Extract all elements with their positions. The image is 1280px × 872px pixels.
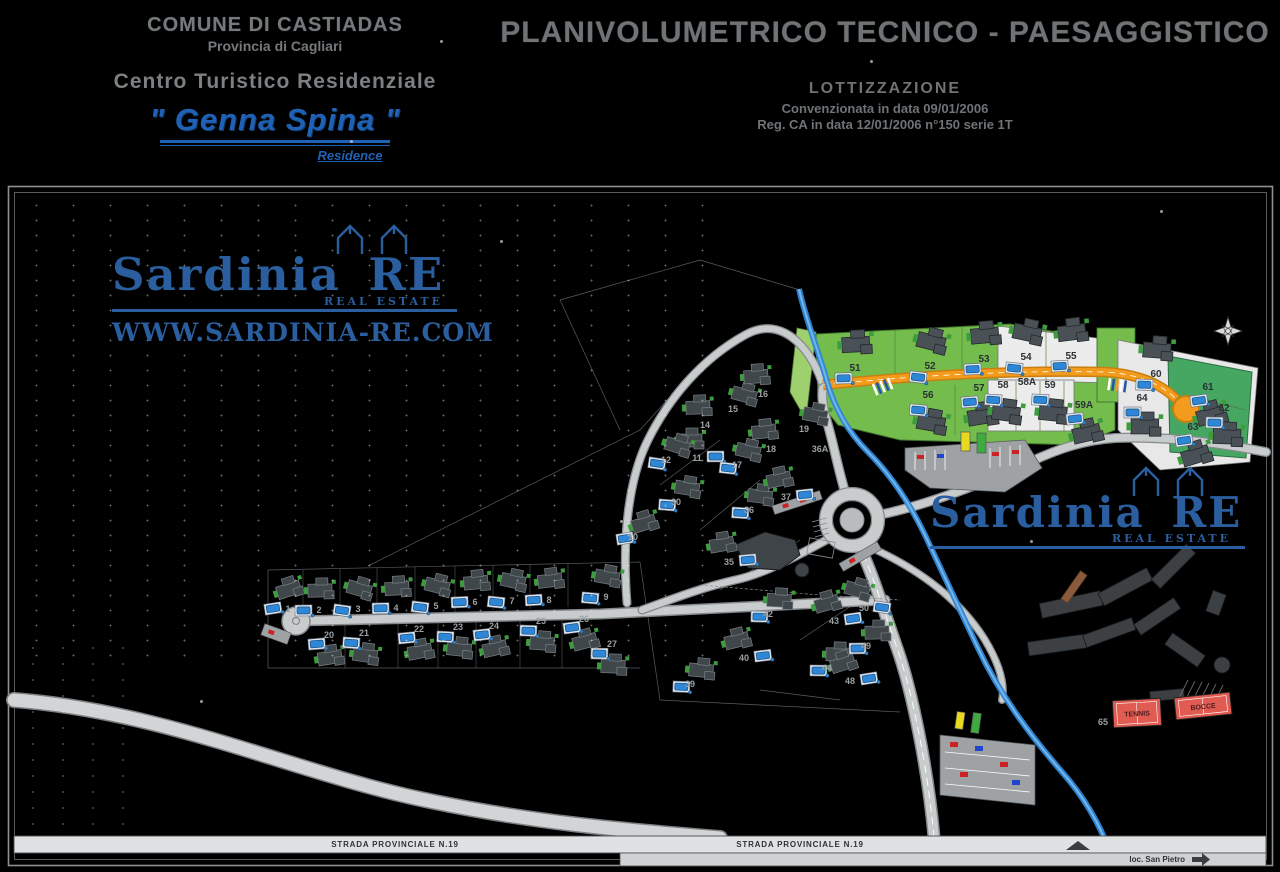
lot-number-label: 43 — [829, 616, 839, 626]
lot-number-label: 4 — [393, 603, 398, 613]
lot-number-label: 56 — [922, 390, 934, 401]
lot-number-label: 65 — [1098, 717, 1108, 727]
swimming-pool — [984, 394, 1004, 407]
brand-underline — [112, 309, 457, 312]
scanned-site-plan: COMUNE DI CASTIADAS Provincia di Cagliar… — [0, 0, 1280, 872]
brand-name: Sardinia RE — [112, 252, 457, 297]
lot-number-label: 23 — [453, 622, 463, 632]
brand-underline — [930, 546, 1245, 549]
house-footprint — [718, 625, 754, 653]
lot-number-label: 62 — [1218, 403, 1230, 414]
lot-number-label: 63 — [1187, 422, 1199, 433]
lot-number-label: 58A — [1018, 377, 1036, 388]
lot-number-label: 6 — [472, 597, 477, 607]
lot-number-label: 7 — [509, 596, 514, 606]
court-tennis: TENNIS — [1112, 698, 1161, 727]
house-footprint — [684, 657, 718, 681]
swimming-pool — [796, 488, 816, 502]
swimming-pool — [436, 631, 456, 644]
swimming-pool — [1136, 379, 1156, 392]
swimming-pool — [264, 601, 285, 616]
logo-houses-icon — [334, 222, 416, 256]
swimming-pool — [707, 451, 726, 463]
lot-number-label: 18 — [766, 444, 776, 454]
house-footprint — [739, 363, 772, 386]
house-footprint — [533, 566, 567, 591]
provincial-road-band: STRADA PROVINCIALE N.19 STRADA PROVINCIA… — [14, 836, 1266, 866]
watermark-sardinia-re-2: Sardinia RE REAL ESTATE — [930, 492, 1245, 549]
site-plan-map: STRADA PROVINCIALE N.19 STRADA PROVINCIA… — [0, 0, 1280, 872]
swimming-pool — [873, 601, 894, 616]
lot-number-label: 5 — [433, 601, 438, 611]
lot-number-label: 60 — [1150, 369, 1162, 380]
lot-number-label: 37 — [781, 492, 791, 502]
lot-number-label: 1 — [285, 604, 290, 614]
swimming-pool — [961, 396, 981, 410]
swimming-pool — [487, 596, 507, 610]
logo-houses-icon — [1130, 464, 1212, 498]
lot-number-label: 26 — [579, 614, 589, 624]
brand-name: Sardinia RE — [930, 492, 1245, 534]
house-footprint — [380, 575, 413, 598]
lot-number-label: 3 — [355, 604, 360, 614]
lot-number-label: 9 — [603, 592, 608, 602]
house-footprint — [682, 394, 715, 416]
house-footprint — [304, 578, 336, 600]
lot-number-label: 15 — [728, 404, 738, 414]
lot-number-label: 11 — [692, 453, 702, 463]
village-buildings — [1027, 544, 1230, 701]
lot-number-label: 20 — [324, 630, 334, 640]
swimming-pool — [754, 649, 774, 663]
lot-number-label: 59 — [1044, 380, 1056, 391]
lot-number-label: 10 — [628, 532, 638, 542]
house-footprint — [808, 587, 845, 616]
house-footprint — [496, 566, 532, 593]
lot-number-label: 17 — [732, 460, 742, 470]
destination-label: loc. San Pietro — [1129, 855, 1185, 864]
house-footprint — [590, 562, 625, 588]
house-footprint — [670, 474, 705, 500]
lot-number-label: 12 — [661, 455, 671, 465]
swimming-pool — [964, 363, 984, 376]
lot-number-label: 44 — [822, 663, 832, 673]
lot-number-label: 49 — [861, 641, 871, 651]
lot-number-label: 27 — [607, 639, 617, 649]
swimming-pool — [525, 594, 545, 607]
swimming-pool — [520, 625, 540, 638]
lot-number-label: 53 — [978, 354, 990, 365]
road-label-1: STRADA PROVINCIALE N.19 — [331, 840, 458, 849]
house-footprint — [270, 573, 307, 603]
house-footprint — [747, 418, 781, 442]
lot-number-label: 16 — [758, 389, 768, 399]
house-footprint — [459, 569, 493, 593]
lot-number-label: 55 — [1065, 351, 1077, 362]
lot-number-label: 8 — [546, 595, 551, 605]
lot-number-label: 52 — [924, 361, 936, 372]
swimming-pool — [844, 612, 865, 627]
swimming-pool — [1206, 417, 1225, 429]
lot-number-label: 42 — [763, 609, 773, 619]
lot-number-label: 35 — [724, 557, 734, 567]
lot-number-label: 24 — [489, 621, 499, 631]
house-footprint — [341, 573, 378, 602]
swimming-pool — [860, 671, 881, 686]
lot-number-label: 50 — [859, 603, 869, 613]
compass-icon — [1214, 317, 1242, 345]
lot-number-label: 54 — [1020, 352, 1032, 363]
lot-number-label: 22 — [414, 624, 424, 634]
lot-number-label: 48 — [845, 676, 855, 686]
lot-number-label: 59A — [1075, 400, 1093, 411]
swimming-pool — [295, 605, 314, 617]
lot-number-label: 36 — [744, 505, 754, 515]
lot-number-label: 57 — [973, 383, 985, 394]
house-footprint — [704, 530, 739, 556]
swimming-pool — [342, 637, 362, 650]
swimming-pool — [372, 603, 391, 616]
house-footprint — [420, 570, 456, 598]
swimming-pool — [581, 592, 601, 606]
road-label-2: STRADA PROVINCIALE N.19 — [736, 840, 863, 849]
lot-number-label: 25 — [536, 616, 546, 626]
south-parking — [940, 712, 1035, 805]
lot-number-label: 39 — [685, 679, 695, 689]
swimming-pool — [835, 373, 854, 386]
watermark-sardinia-re: Sardinia RE REAL ESTATE WWW.SARDINIA-RE.… — [112, 252, 457, 347]
lot-number-label: 61 — [1202, 382, 1214, 393]
lot-number-label: 21 — [359, 628, 369, 638]
lot-number-label: 30 — [671, 497, 681, 507]
lot-number-label: 64 — [1136, 393, 1148, 404]
court-label: TENNIS — [1124, 710, 1150, 718]
lot-number-label: 40 — [739, 653, 749, 663]
lot-number-label: 58 — [997, 380, 1009, 391]
swimming-pool — [591, 648, 610, 660]
lot-number-label: 2 — [316, 605, 321, 615]
brand-website: WWW.SARDINIA-RE.COM — [112, 318, 457, 347]
lot-number-label: 19 — [799, 424, 809, 434]
lot-number-label: 14 — [700, 420, 710, 430]
swimming-pool — [1124, 407, 1143, 419]
lot-number-label: 51 — [849, 363, 861, 374]
swimming-pool — [1031, 394, 1051, 407]
swimming-pool — [739, 554, 759, 568]
swimming-pool — [451, 596, 471, 609]
lot-number-label: 36A — [812, 444, 829, 454]
